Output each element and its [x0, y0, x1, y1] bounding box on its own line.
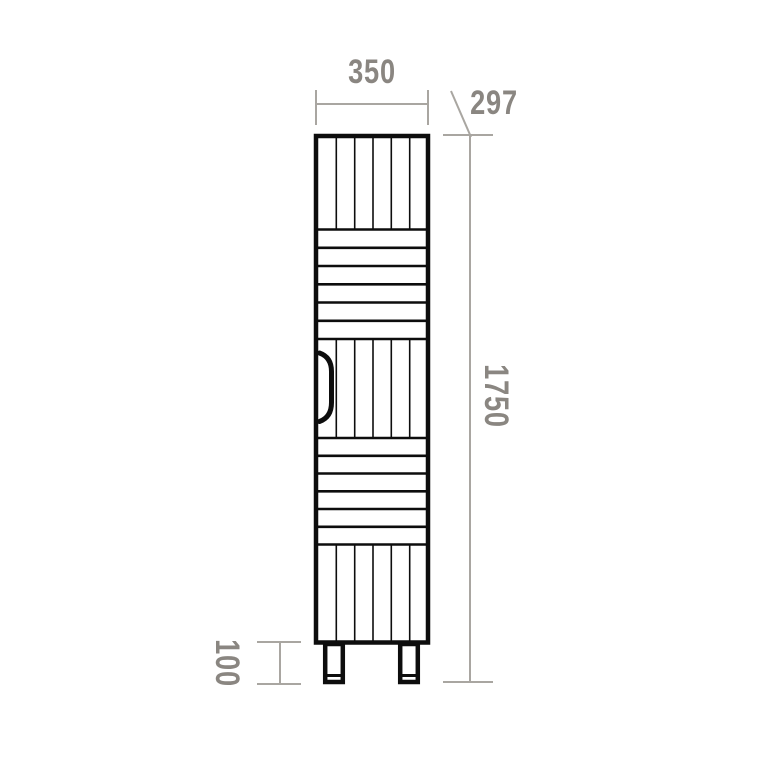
height-dimension-label: 1750	[479, 364, 513, 428]
depth-leader-line	[451, 91, 471, 137]
depth-dimension-lines	[451, 91, 471, 137]
diagram-canvas: 350 297 1750 100	[0, 0, 762, 762]
cabinet-drawing	[316, 136, 428, 682]
leg-height-dimension-lines	[257, 642, 301, 684]
legs	[325, 644, 418, 682]
leg-height-dimension-label: 100	[210, 639, 244, 687]
cabinet-elevation-drawing	[0, 0, 762, 762]
depth-dimension-label: 297	[470, 86, 518, 120]
width-dimension-label: 350	[348, 55, 396, 89]
width-dimension-lines	[316, 90, 428, 125]
